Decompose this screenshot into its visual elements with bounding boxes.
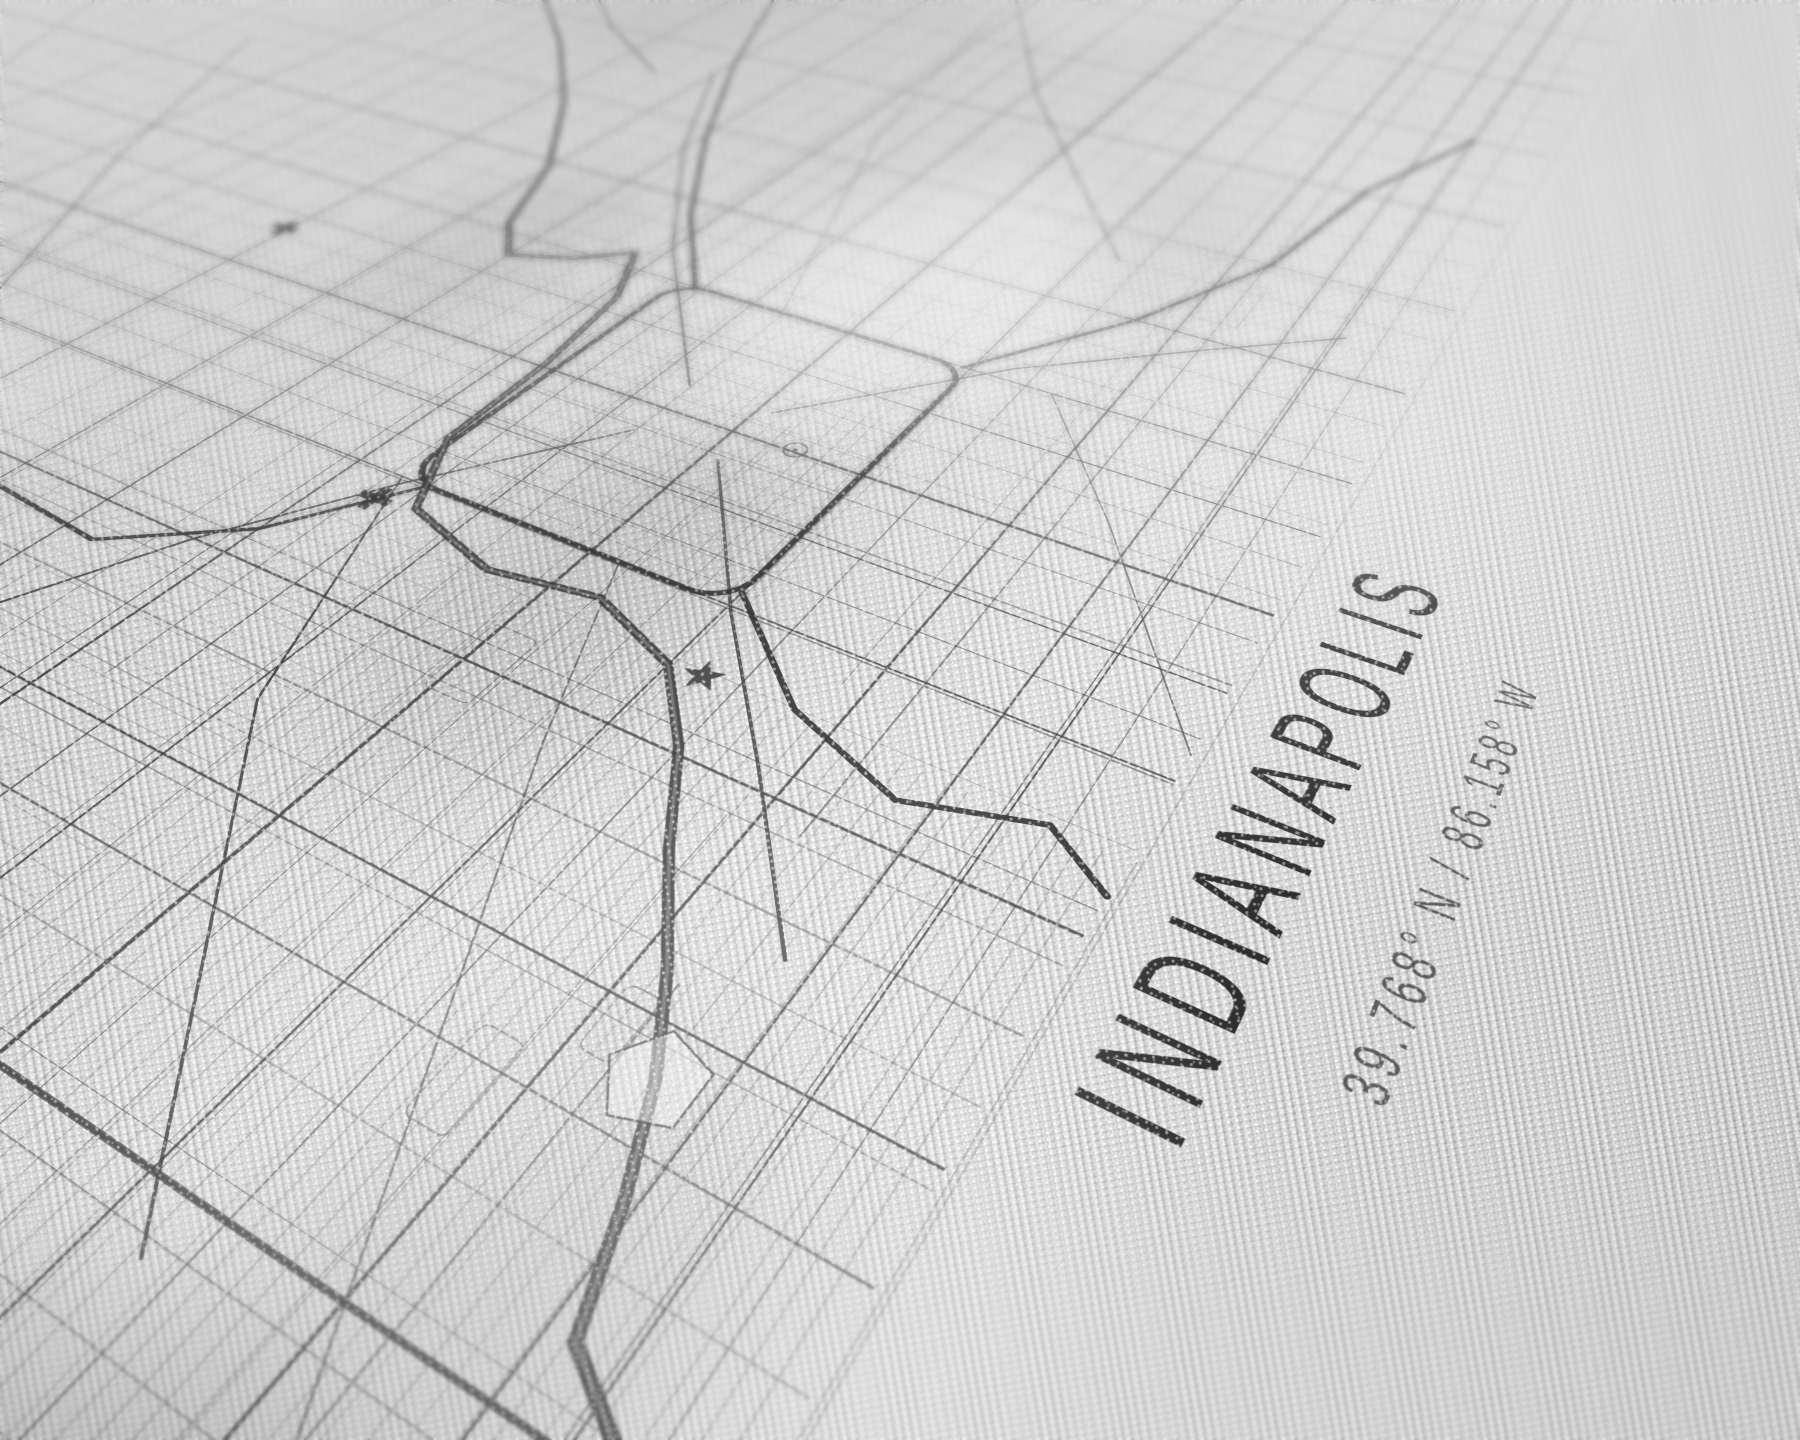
map-print-plane: INDIANAPOLIS 39.768° N / 86.158° W: [0, 0, 1800, 1440]
canvas-print-photo: INDIANAPOLIS 39.768° N / 86.158° W: [0, 0, 1800, 1440]
street-map-artwork: [0, 0, 1680, 1440]
distance-fade-overlay: [0, 0, 1701, 1440]
